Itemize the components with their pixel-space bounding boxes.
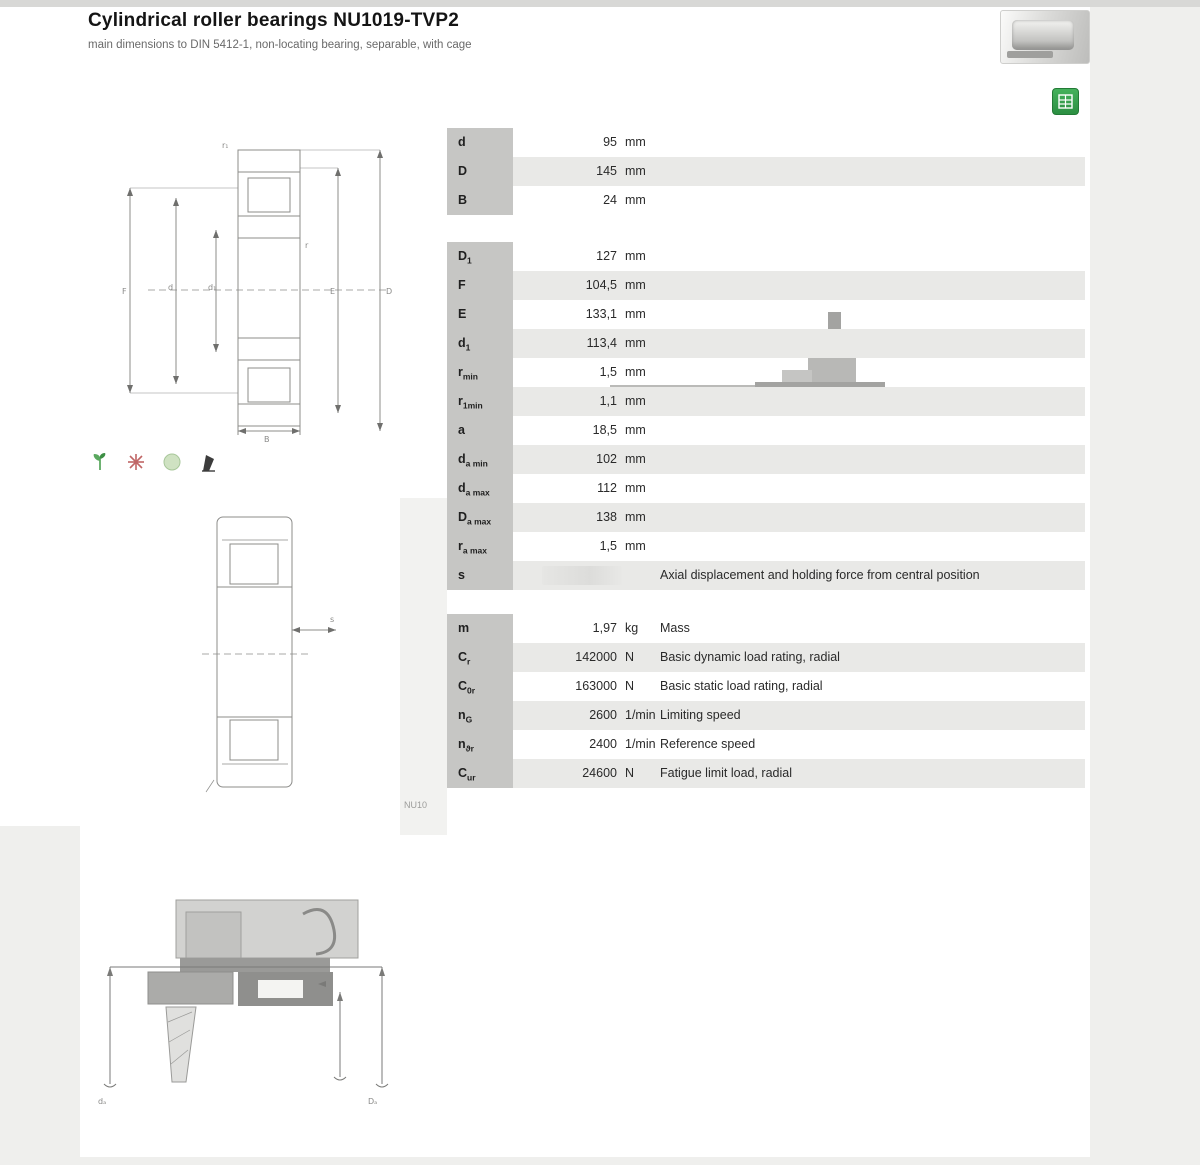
dim-label-B: B [264,435,270,443]
dim-label-r: r [305,241,309,250]
perf-desc: Basic dynamic load rating, radial [660,643,1077,672]
dim-value: 1,5 [513,532,617,561]
dim-value: 145 [513,157,617,186]
dim-value: 104,5 [513,271,617,300]
table-row: E 133,1 mm [447,300,1085,329]
green-leaf-icon[interactable] [88,450,112,474]
bearing-photo-cylinder [1012,20,1074,50]
left-gutter [0,826,80,1157]
table-row: m 1,97 kg Mass [447,614,1085,643]
dim-symbol: rmin [447,358,513,387]
dimensions-table: D1 127 mm F 104,5 mm E 133,1 mm d1 113,4… [447,242,1085,590]
dim-value: 1,1 [513,387,617,416]
dim-unit: mm [625,503,673,532]
dim-symbol: E [447,300,513,329]
red-burst-icon[interactable] [124,450,148,474]
pale-green-dot-icon[interactable] [160,450,184,474]
dim-value: 127 [513,242,617,271]
dim-symbol: D [447,157,513,186]
table-row: D1 127 mm [447,242,1085,271]
perf-value: 2600 [513,701,617,730]
perf-desc: Mass [660,614,1077,643]
dim-symbol: a [447,416,513,445]
perf-value: 142000 [513,643,617,672]
perf-value: 2400 [513,730,617,759]
table-row: a 18,5 mm [447,416,1085,445]
bearing-cross-section-drawing: F d d₁ E D B r₁ r [88,138,403,443]
dim-unit: mm [625,445,673,474]
perf-value: 1,97 [513,614,617,643]
black-flag-icon[interactable] [196,450,220,474]
dim-unit: mm [625,186,673,215]
dim-value: 18,5 [513,416,617,445]
dim-symbol: D1 [447,242,513,271]
table-row: nϑr 2400 1/min Reference speed [447,730,1085,759]
dim-symbol: ra max [447,532,513,561]
grid-glyph [1058,94,1073,109]
dim-value: 113,4 [513,329,617,358]
performance-table: m 1,97 kg Mass Cr 142000 N Basic dynamic… [447,614,1085,788]
perf-symbol: nG [447,701,513,730]
table-row: rmin 1,5 mm [447,358,1085,387]
perf-symbol: m [447,614,513,643]
page-subtitle: main dimensions to DIN 5412-1, non-locat… [88,39,472,51]
table-row: da max 112 mm [447,474,1085,503]
dim-unit: mm [625,271,673,300]
dim-unit: mm [625,329,673,358]
dim-unit: mm [625,157,673,186]
dim-label-s: s [330,615,334,624]
dim-label-r1: r₁ [222,141,229,150]
dim-value: 24 [513,186,617,215]
calculate-grid-icon[interactable] [1052,88,1079,115]
bearing-section-drawing: s [162,502,382,807]
table-row: Cr 142000 N Basic dynamic load rating, r… [447,643,1085,672]
dim-label-da: dₐ [98,1097,106,1106]
main-dimensions-table: d 95 mm D 145 mm B 24 mm [447,128,1085,215]
mid-gutter [400,498,447,835]
page-title: Cylindrical roller bearings NU1019-TVP2 [88,10,459,32]
dim-value: 112 [513,474,617,503]
table-row: B 24 mm [447,186,1085,215]
dim-value: 102 [513,445,617,474]
dim-value: 95 [513,128,617,157]
perf-symbol: Cur [447,759,513,788]
dim-unit: mm [625,300,673,329]
dim-symbol: d [447,128,513,157]
table-row: da min 102 mm [447,445,1085,474]
table-row: Da max 138 mm [447,503,1085,532]
mounting-dimensions-drawing: dₐ Dₐ [88,872,403,1112]
dim-unit: mm [625,358,673,387]
bottom-border [0,1157,1200,1165]
axial-displacement-graphic [542,566,622,585]
perf-symbol: Cr [447,643,513,672]
dim-symbol: da min [447,445,513,474]
dim-symbol: F [447,271,513,300]
dim-label-E: E [330,287,335,296]
dim-value: 1,5 [513,358,617,387]
dim-label-d: d [168,283,173,292]
perf-symbol: nϑr [447,730,513,759]
table-row: D 145 mm [447,157,1085,186]
table-row: s Axial displacement and holding force f… [447,561,1085,590]
dim-label-F: F [122,287,127,296]
product-photo[interactable] [1000,10,1090,64]
dim-label-Da: Dₐ [368,1097,377,1106]
dim-symbol: r1min [447,387,513,416]
dim-symbol: d1 [447,329,513,358]
perf-symbol: C0r [447,672,513,701]
dim-value: 138 [513,503,617,532]
dim-value: 133,1 [513,300,617,329]
dim-symbol: B [447,186,513,215]
perf-desc: Fatigue limit load, radial [660,759,1077,788]
dim-unit: mm [625,128,673,157]
dim-symbol: s [447,561,513,590]
dim-label-d1: d₁ [208,283,216,292]
bearing-photo-shadow [1007,51,1053,58]
table-row: nG 2600 1/min Limiting speed [447,701,1085,730]
drawing-caption: NU10 [404,800,427,810]
dim-desc: Axial displacement and holding force fro… [660,561,1077,590]
dim-unit: mm [625,242,673,271]
table-row: C0r 163000 N Basic static load rating, r… [447,672,1085,701]
dim-symbol: Da max [447,503,513,532]
perf-desc: Reference speed [660,730,1077,759]
table-row: d1 113,4 mm [447,329,1085,358]
table-row: Cur 24600 N Fatigue limit load, radial [447,759,1085,788]
right-gutter [1090,7,1200,1165]
table-row: r1min 1,1 mm [447,387,1085,416]
table-row: d 95 mm [447,128,1085,157]
feature-icon-row [88,450,220,474]
perf-desc: Limiting speed [660,701,1077,730]
dim-symbol: da max [447,474,513,503]
dim-unit: mm [625,532,673,561]
dim-unit: mm [625,387,673,416]
table-row: F 104,5 mm [447,271,1085,300]
perf-desc: Basic static load rating, radial [660,672,1077,701]
dim-label-D: D [386,287,392,296]
perf-value: 24600 [513,759,617,788]
top-border [0,0,1200,7]
datasheet-page: Cylindrical roller bearings NU1019-TVP2 … [0,0,1200,1165]
dim-unit: mm [625,474,673,503]
table-row: ra max 1,5 mm [447,532,1085,561]
dim-unit: mm [625,416,673,445]
perf-value: 163000 [513,672,617,701]
